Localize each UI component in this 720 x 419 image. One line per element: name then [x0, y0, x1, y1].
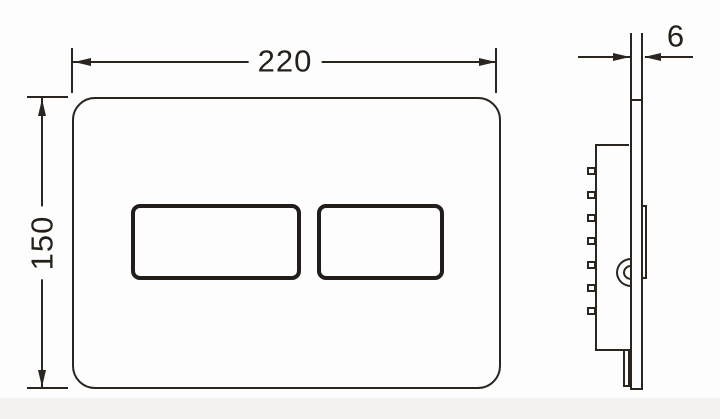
mounting-clip	[587, 284, 596, 292]
height-dim-extension-top	[27, 96, 68, 98]
mounting-clip	[587, 307, 596, 315]
width-dim-extension-left	[71, 48, 73, 93]
mounting-clip	[587, 237, 596, 245]
mounting-clip	[587, 191, 596, 199]
height-dim-arrowhead-top	[38, 99, 46, 116]
side-housing	[595, 144, 629, 351]
mounting-clip	[587, 214, 596, 222]
width-dim-arrowhead-right	[479, 58, 496, 66]
mounting-clip	[587, 261, 596, 269]
width-dim-extension-right	[495, 48, 497, 93]
flush-button-small	[317, 204, 444, 280]
mounting-clip	[587, 167, 596, 175]
height-dim-extension-bottom	[27, 387, 68, 389]
technical-drawing: 220 150 6	[0, 0, 720, 419]
side-housing-stem	[623, 349, 630, 387]
thickness-dimension-label: 6	[663, 21, 689, 52]
footer-band	[0, 398, 720, 419]
thickness-dim-extension-right	[641, 33, 643, 99]
button-side-profile	[641, 205, 647, 279]
thickness-dim-extension-left	[630, 33, 632, 99]
width-dim-arrowhead-left	[74, 58, 91, 66]
thickness-dim-arrowhead-right	[644, 53, 661, 61]
width-dimension-label: 220	[249, 46, 322, 77]
thickness-dim-arrowhead-left	[613, 53, 630, 61]
height-dimension-label: 150	[27, 207, 58, 280]
height-dim-arrowhead-bottom	[38, 370, 46, 387]
flush-button-large	[131, 204, 301, 280]
